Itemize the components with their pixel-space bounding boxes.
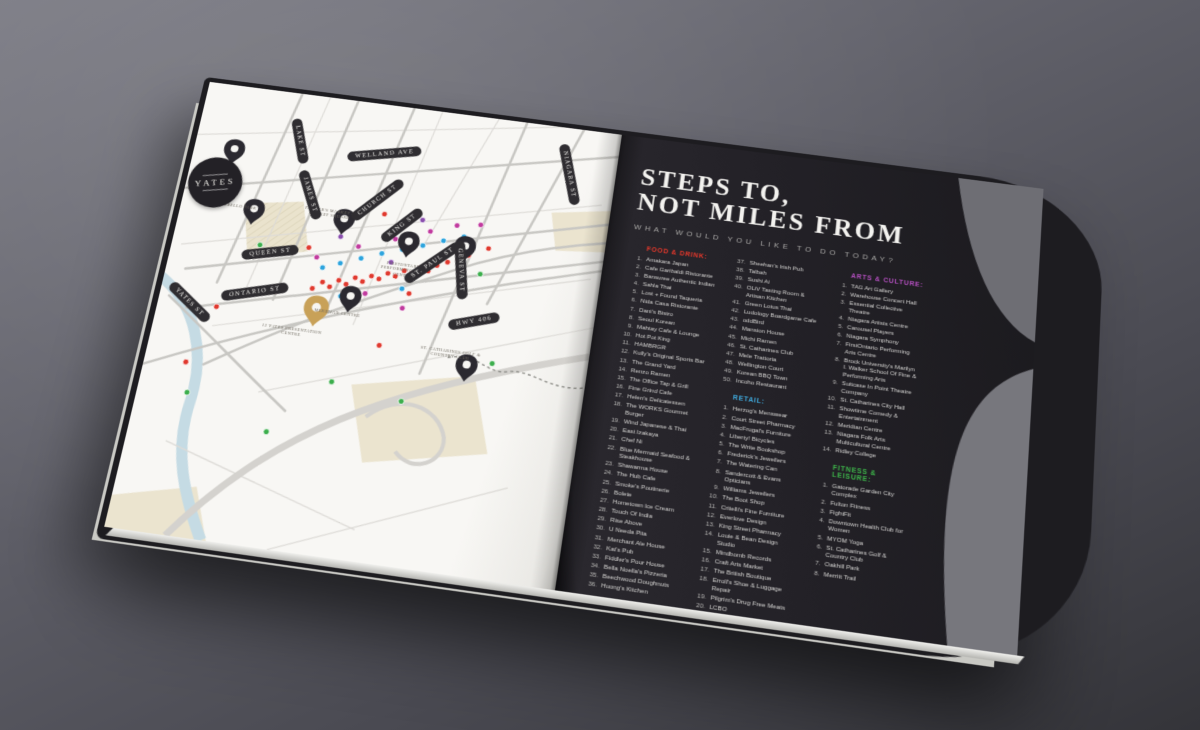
list-item-number: 41. xyxy=(728,298,742,307)
map-marker-dot xyxy=(319,264,326,270)
list-item-number: 6. xyxy=(807,542,822,559)
list-item-number: 34. xyxy=(586,561,601,571)
list-item-number: 40. xyxy=(729,282,743,298)
map-marker-dot xyxy=(381,211,388,217)
map-marker-dot xyxy=(406,290,413,296)
list-item-number: 1. xyxy=(814,480,829,497)
list-item-number: 4. xyxy=(712,430,726,439)
map-marker-dot xyxy=(398,286,405,292)
list-item-number: 12. xyxy=(616,347,630,356)
directory-page: STEPS TO, NOT MILES FROM WHAT WOULD YOU … xyxy=(555,135,1044,656)
brochure-spread: NIAGARA ST LAKE ST WELLAND AVE JAMES ST … xyxy=(104,82,1043,656)
list-item-number: 9. xyxy=(705,483,719,492)
list-item-number: 7. xyxy=(708,457,722,466)
list-item-number: 5. xyxy=(809,532,823,542)
list-item-number: 31. xyxy=(590,533,604,543)
list-item-number: 17. xyxy=(610,391,624,400)
list-item-number: 8. xyxy=(706,466,721,483)
map-marker-dot xyxy=(485,245,492,251)
map-marker-dot xyxy=(399,305,406,311)
map-marker-dot xyxy=(358,255,365,261)
map-marker-dot xyxy=(489,360,496,367)
map-marker-dot xyxy=(335,277,342,283)
list-item-number: 23. xyxy=(600,459,614,468)
yates-logo-text: YATES xyxy=(195,177,236,189)
list-item-number: 14. xyxy=(699,529,714,546)
map-marker-dot xyxy=(337,260,344,266)
list-item-number: 3. xyxy=(812,506,826,515)
list-item-number: 8. xyxy=(621,313,635,322)
list-item-number: 49. xyxy=(719,367,733,376)
list-item-number: 29. xyxy=(592,514,606,524)
map-marker-dot xyxy=(326,284,333,290)
list-item-number: 15. xyxy=(698,546,712,556)
list-item-number: 38. xyxy=(731,266,745,275)
list-item-number: 48. xyxy=(720,358,734,367)
list-item-number: 19. xyxy=(606,416,620,425)
map-marker-dot xyxy=(368,273,375,279)
map-marker-dot xyxy=(309,285,316,291)
list-item-number: 43. xyxy=(726,315,740,324)
list-item-number: 1. xyxy=(629,254,643,263)
list-item-number: 9. xyxy=(824,378,838,394)
directory-columns: FOOD & DRINK: 1. Amakara Japan 2. Cafe G… xyxy=(582,244,1038,656)
list-item-number: 2. xyxy=(628,262,642,271)
list-item-number: 1. xyxy=(715,403,729,412)
list-item-number: 46. xyxy=(722,341,736,350)
list-item-number: 8. xyxy=(825,355,840,378)
list-item-number: 7. xyxy=(807,559,821,569)
list-item-number: 7. xyxy=(622,304,636,313)
list-item-number: 44. xyxy=(725,323,739,332)
list-item-number: 5. xyxy=(624,287,638,296)
list-item-number: 28. xyxy=(594,505,608,514)
directory-content: STEPS TO, NOT MILES FROM WHAT WOULD YOU … xyxy=(555,135,1044,656)
list-item-number: 6. xyxy=(829,330,843,339)
list-item-number: 12. xyxy=(820,419,834,428)
list-item-number: 47. xyxy=(721,349,735,358)
map-marker-dot xyxy=(362,290,369,296)
list-item-number: 25. xyxy=(597,477,611,486)
list-item-number: 10. xyxy=(618,330,632,339)
list-item-number: 13. xyxy=(701,520,715,530)
map-marker-dot xyxy=(319,279,326,285)
list-item-number: 24. xyxy=(599,468,613,477)
map-marker-dot xyxy=(427,228,434,234)
list-item-number: 39. xyxy=(730,274,744,283)
list-item-number: 10. xyxy=(823,394,837,403)
map: NIAGARA ST LAKE ST WELLAND AVE JAMES ST … xyxy=(104,82,622,590)
list-item-number: 27. xyxy=(595,496,609,505)
arts-culture-list: 1. TAG Art Gallery 2. Warehouse Concert … xyxy=(818,281,926,465)
list-item-number: 42. xyxy=(727,306,741,315)
list-item-number: 22. xyxy=(601,443,616,460)
list-item-number: 26. xyxy=(596,487,610,496)
list-item-number: 12. xyxy=(702,510,716,519)
list-item-number: 36. xyxy=(583,580,598,590)
list-item-number: 20. xyxy=(691,601,706,611)
list-item-number: 35. xyxy=(584,570,599,580)
list-item-number: 11. xyxy=(703,501,717,510)
map-marker-dot xyxy=(440,238,447,244)
list-item-number: 14. xyxy=(818,444,832,453)
list-item-number: 2. xyxy=(833,289,846,298)
list-item-number: 4. xyxy=(810,515,825,532)
list-item-number: 45. xyxy=(723,332,737,341)
map-marker-dot xyxy=(376,342,383,349)
food-drink-list-part2: 37. Sheehan's Irish Pub 38. Talbah 39. xyxy=(718,257,824,395)
map-page: NIAGARA ST LAKE ST WELLAND AVE JAMES ST … xyxy=(104,82,622,590)
list-item-number: 7. xyxy=(828,339,842,355)
list-item-number: 18. xyxy=(607,400,622,416)
column-arts-fitness: ARTS & CULTURE: 1. TAG Art Gallery 2. Wa… xyxy=(801,271,927,640)
fitness-leisure-list: 1. Gatorade Garden City Complex 2. Fulto… xyxy=(806,480,910,589)
list-item-number: 20. xyxy=(605,425,619,434)
list-item-number: 21. xyxy=(604,434,618,443)
list-item-number: 30. xyxy=(591,524,605,534)
list-item-number: 2. xyxy=(813,497,827,506)
logo-rule-bottom xyxy=(203,189,228,192)
map-marker-dot xyxy=(182,359,189,366)
list-item-number: 11. xyxy=(617,339,631,348)
map-marker-dot xyxy=(419,217,426,223)
list-item-number: 4. xyxy=(626,279,640,288)
list-item-number: 19. xyxy=(692,592,706,602)
list-item-number: 17. xyxy=(695,565,709,575)
list-item-number: 9. xyxy=(620,322,634,331)
map-marker-dot xyxy=(375,276,382,282)
list-item-number: 10. xyxy=(704,492,718,501)
logo-rule-top xyxy=(203,174,228,176)
list-item-number: 32. xyxy=(588,542,602,552)
map-marker-dot xyxy=(477,271,484,277)
map-marker-dot xyxy=(328,378,335,385)
list-item-number: 50. xyxy=(718,375,732,384)
map-marker-dot xyxy=(454,222,461,228)
list-item-number: 3. xyxy=(713,421,727,430)
list-item-number: 1. xyxy=(834,281,847,290)
list-item-number: 2. xyxy=(714,412,728,421)
scene: { "scene": {"background_top": "#7b7b84",… xyxy=(0,0,1200,730)
list-item-number: 16. xyxy=(611,382,625,391)
list-item-number: 18. xyxy=(693,574,708,592)
list-item-number: 6. xyxy=(710,448,724,457)
map-marker-dot xyxy=(359,278,366,284)
retail-list: 1. Herzog's Menswear 2. Court Street Pha… xyxy=(691,403,809,622)
list-item-number: 15. xyxy=(612,373,626,382)
map-marker-dot xyxy=(337,233,344,239)
list-item-number: 14. xyxy=(613,365,627,374)
list-item-number: 3. xyxy=(832,298,846,314)
map-marker-dot xyxy=(352,275,359,281)
list-item-number: 6. xyxy=(623,296,637,305)
map-pin xyxy=(395,230,421,259)
list-item-number: 5. xyxy=(830,322,844,331)
list-item-number: 3. xyxy=(627,271,641,280)
list-item-number: 37. xyxy=(732,257,746,266)
list-item-number: 16. xyxy=(697,555,711,565)
list-item-number: 11. xyxy=(821,403,836,419)
list-item-number: 8. xyxy=(806,568,820,578)
list-item-number: 13. xyxy=(615,356,629,365)
list-item-number: 5. xyxy=(711,439,725,448)
list-item-number: 13. xyxy=(819,428,834,445)
map-marker-dot xyxy=(263,428,270,435)
list-item-number: 4. xyxy=(831,313,845,322)
map-marker-dot xyxy=(378,250,385,256)
list-item-number: 33. xyxy=(587,552,602,562)
